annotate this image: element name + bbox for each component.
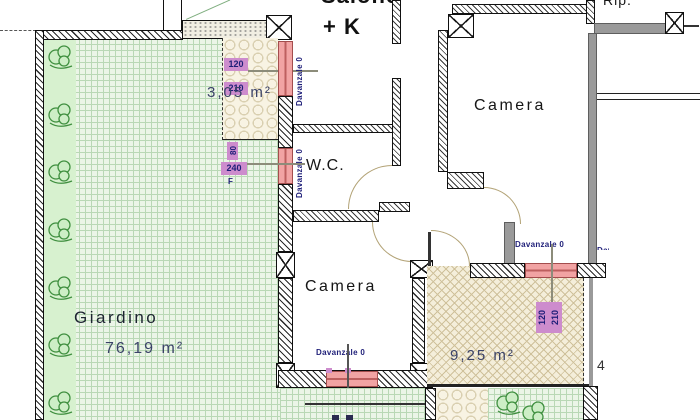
terrace-window-height: 210 [549,302,562,333]
salone-bottom-wall [293,124,393,133]
bottom-balcony-strip [436,388,488,420]
wc-bottom-wall-jog [379,202,410,212]
bush-icon [46,44,74,70]
pillar-x-1 [266,15,292,40]
sill-label-camera-bottom: Davanzale 0 [316,348,365,357]
dimension-leader-3 [551,244,553,304]
terrace-top-wall-b [577,263,606,278]
camera-bottom-right-wall [412,278,425,363]
rip-label: Rip. [603,0,632,8]
plant-diagonal-line [186,0,230,20]
cutoff-dimension-text [346,415,353,420]
rip-bottom-wall [594,23,667,34]
bush-icon [46,332,74,358]
terrace-bottom-line [427,384,589,387]
salone-label-2: + K [323,14,361,40]
bottom-wall-post [425,388,436,420]
neighbor-wall-stub [684,25,699,27]
window-end-marker [326,368,332,373]
party-gray-wall [588,33,597,266]
terrace-door-arc [431,230,470,266]
terrace-right-dashed-edge [583,278,584,386]
terrace-right-gray-wall [589,278,593,386]
sill-label-neighbor-clipped: Davanzale 0 [597,240,609,250]
rip-left-wall [586,0,595,24]
bush-icon [46,217,74,243]
wc-bottom-wall [293,210,379,222]
bush-icon [494,390,522,416]
wc-window [278,148,293,184]
garden-plant-strip [44,40,76,420]
sill-label-terrace: Davanzale 0 [515,240,564,249]
bush-icon [520,400,548,420]
neighbor-double-wall [597,93,700,100]
camera-bottom-door-arc [372,222,412,262]
salone-window [278,41,293,96]
garden-label: Giardino [74,308,158,328]
dimension-line-horizontal [305,403,425,405]
camera-top-door-arc [484,187,521,224]
camera-bottom-label: Camera [305,278,377,296]
wc-window-tag: F [228,177,233,186]
pillar-x-7 [665,12,684,34]
left-wall-seg-2 [278,184,293,252]
garden-left-wall [35,30,44,420]
balcony-window-width: 120 [224,58,248,71]
salone-label: Salone [321,0,399,9]
terrace-top-wall-a [470,263,525,278]
camera-top-left-wall-step [447,172,484,189]
top-concrete-wall [182,20,267,39]
wc-label: W.C. [306,157,345,175]
upper-wall-band [163,0,182,30]
sill-label-salone: Davanzale 0 [295,40,304,106]
left-wall-seg-3 [278,278,293,363]
wc-window-height: 240 [221,162,247,175]
garden-area-value: 76,19 m² [105,340,184,358]
bush-icon [46,159,74,185]
hall-gray-wall [504,222,515,267]
cutoff-dimension-text [332,415,339,420]
left-wall-seg-1 [278,96,293,148]
bottom-green-strip [488,388,583,420]
salone-wc-wall [392,78,401,166]
terrace-area-value: 9,25 m² [450,347,515,364]
bottom-right-wall [583,386,598,420]
floor-plan: Giardino 76,19 m² 120 210 3,05 m² Salone… [0,0,700,420]
bush-icon [46,102,74,128]
neighbor-area-partial: 4 [597,357,607,373]
camera-bottom-window [326,371,378,387]
bush-icon [46,390,74,416]
boundary-dashed-line [0,30,36,31]
camera-top-wall [452,4,592,14]
garden-top-wall [35,30,183,40]
dimension-leader-2 [247,163,305,165]
terrace-window-width: 120 [536,302,549,333]
balcony-area-value: 3,05 m² [207,84,272,101]
salone-divider-top [392,0,401,44]
bush-icon [46,275,74,301]
wc-window-width: 80 [227,142,238,160]
pillar-x-6 [448,14,474,38]
pillar-x-2 [276,252,295,278]
camera-top-label: Camera [474,97,546,115]
camera-top-left-wall [438,30,448,172]
sill-label-neighbor-text: Davanzale 0 [597,246,609,250]
